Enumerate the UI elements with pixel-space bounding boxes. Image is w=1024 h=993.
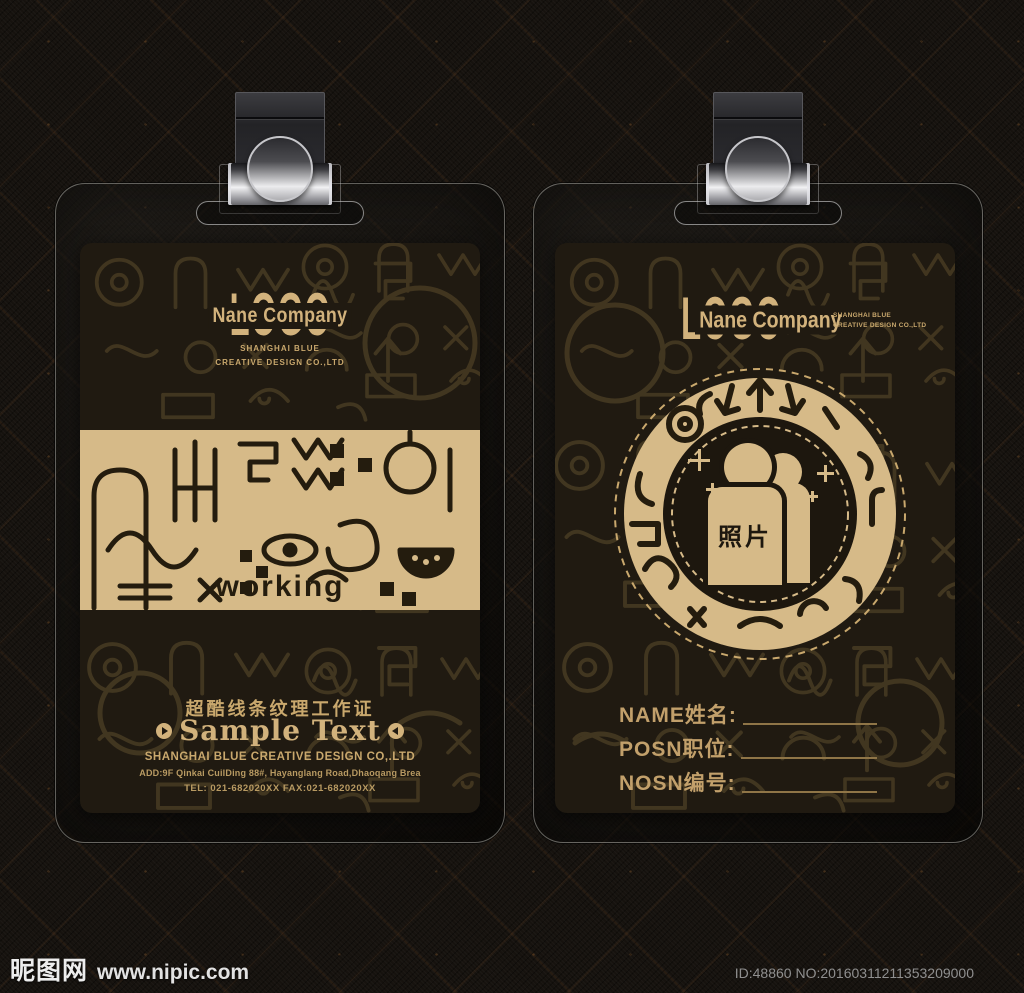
field-row-position: POSN职位: [619, 729, 877, 763]
clip-button-icon [247, 136, 313, 202]
photo-placeholder: 照片 [610, 364, 910, 664]
metal-clip-icon [703, 92, 813, 232]
sample-text: Sample Text [179, 717, 381, 745]
sparkle-plus-icon [706, 483, 718, 495]
person-front-body: 照片 [708, 487, 782, 585]
clip-strap-seam [236, 117, 324, 120]
card-front: LOGO Nane Company SHANGHAI BLUE CREATIVE… [80, 243, 480, 813]
play-deco-icon [156, 723, 172, 739]
watermark-site-name: 昵图网 [10, 951, 88, 987]
tagline-line2: CREATIVE DESIGN CO.,LTD [80, 356, 480, 370]
tagline-line1: SHANGHAI BLUE [833, 311, 926, 321]
field-row-name: NAME姓名: [619, 695, 877, 729]
field-underline [742, 791, 877, 793]
pattern-band: working [80, 430, 480, 610]
clip-strap-seam [714, 117, 802, 120]
watermark-id-text: ID:48860 NO:20160311211353209000 [735, 965, 974, 981]
info-fields: NAME姓名: POSN职位: NOSN编号: [619, 695, 877, 797]
watermark-left: 昵图网 www.nipic.com [10, 951, 249, 987]
field-label-position: POSN职位: [619, 733, 735, 763]
person-silhouette-icon: 照片 [708, 443, 812, 585]
card-back: LOGO Nane Company SHANGHAI BLUE CREATIVE… [555, 243, 955, 813]
company-name: Nane Company [695, 306, 846, 335]
field-underline [741, 757, 877, 759]
back-logo: LOGO Nane Company SHANGHAI BLUE CREATIVE… [681, 287, 941, 359]
sparkle-plus-icon [807, 491, 818, 502]
sparkle-plus-icon [688, 449, 710, 471]
clip-button-icon [725, 136, 791, 202]
front-logo: LOGO Nane Company SHANGHAI BLUE CREATIVE… [80, 283, 480, 369]
play-deco-icon [388, 723, 404, 739]
field-label-name: NAME姓名: [619, 699, 737, 729]
sample-text-row: Sample Text [80, 717, 480, 745]
company-line: SHANGHAI BLUE CREATIVE DESIGN CO,.LTD [80, 751, 480, 763]
tagline-line2: CREATIVE DESIGN CO.,LTD [833, 321, 926, 331]
badge-back: LOGO Nane Company SHANGHAI BLUE CREATIVE… [533, 92, 983, 843]
field-underline [743, 723, 877, 725]
company-name: Nane Company [208, 303, 352, 329]
sparkle-plus-icon [817, 465, 834, 482]
watermark-site-url: www.nipic.com [97, 961, 249, 985]
address-line: ADD:9F Qinkai CuilDing 88#, Hayanglang R… [80, 768, 480, 778]
logo-taglines: SHANGHAI BLUE CREATIVE DESIGN CO.,LTD [833, 311, 926, 332]
person-front-head [724, 443, 772, 491]
badge-front: LOGO Nane Company SHANGHAI BLUE CREATIVE… [55, 92, 505, 843]
band-caption: working [80, 570, 480, 604]
field-label-number: NOSN编号: [619, 767, 736, 797]
tel-fax-line: TEL: 021-682020XX FAX:021-682020XX [80, 783, 480, 794]
metal-clip-icon [225, 92, 335, 232]
design-mockup-canvas: LOGO Nane Company SHANGHAI BLUE CREATIVE… [0, 0, 1024, 993]
photo-label: 照片 [718, 517, 772, 552]
field-row-number: NOSN编号: [619, 763, 877, 797]
